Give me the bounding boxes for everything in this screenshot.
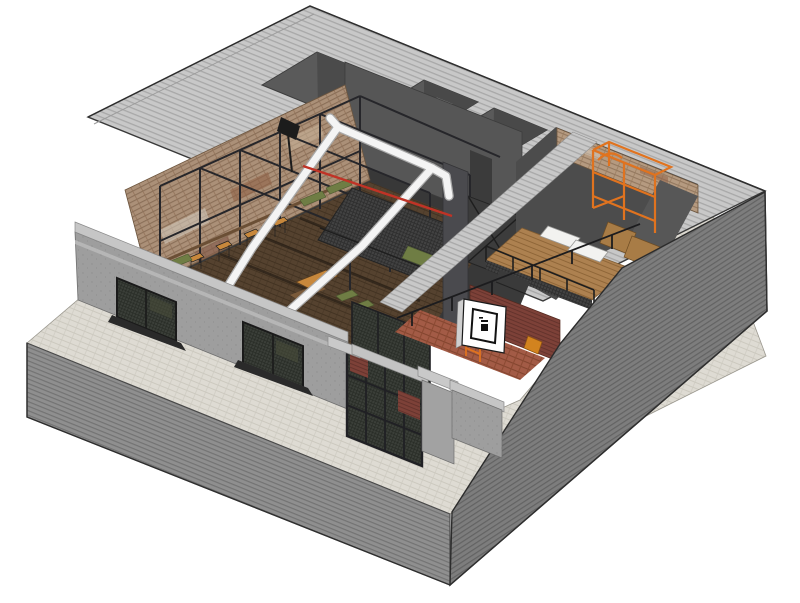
porch-right-pier (422, 380, 454, 464)
signboard (456, 299, 506, 353)
axonometric-building-render (0, 0, 800, 603)
render-viewport: Isometric cutaway rendering of a single-… (0, 0, 800, 603)
back-wall-door-opening (470, 150, 492, 205)
